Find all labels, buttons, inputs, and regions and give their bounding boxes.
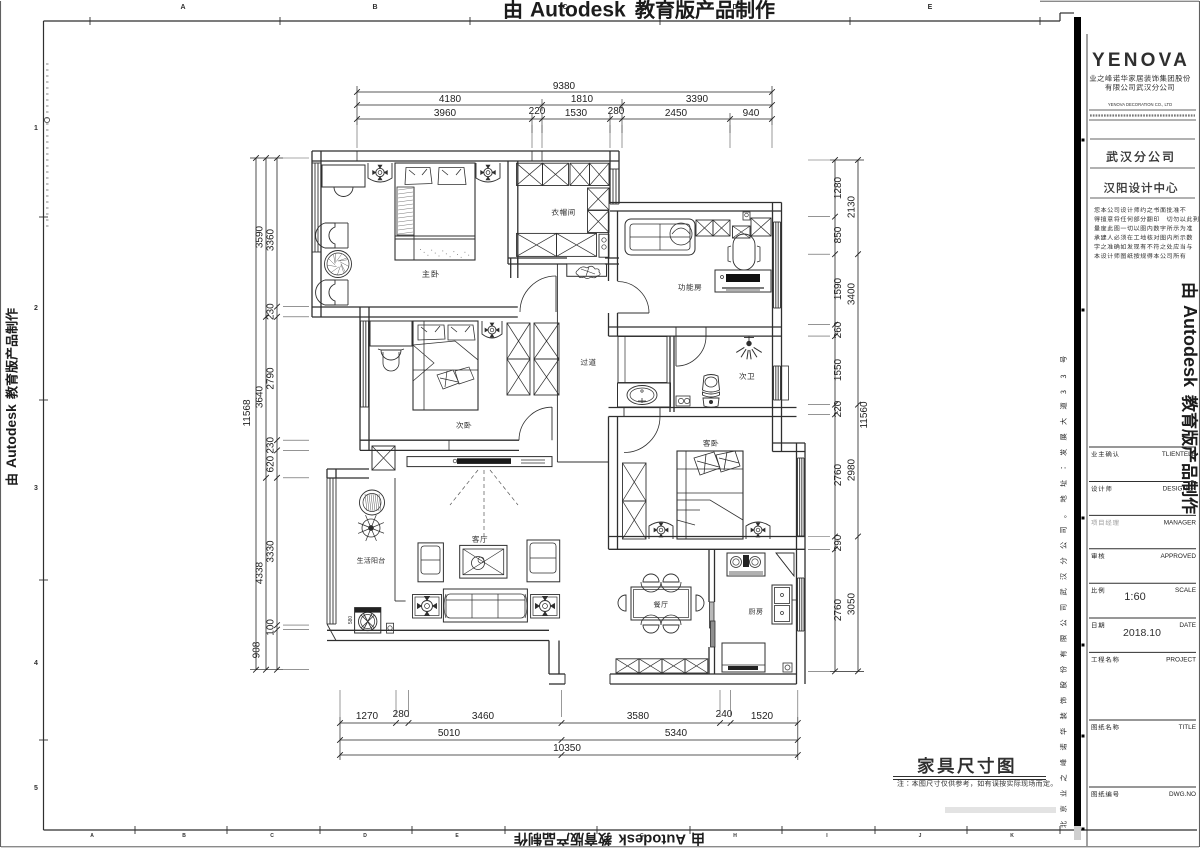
svg-text:3580: 3580: [627, 711, 650, 722]
svg-text:220: 220: [833, 400, 844, 417]
svg-text:280: 280: [393, 709, 410, 720]
svg-text:E: E: [928, 4, 933, 11]
svg-text:850: 850: [833, 226, 844, 243]
svg-text:3590: 3590: [255, 225, 266, 248]
svg-text:10350: 10350: [553, 743, 581, 754]
svg-text:100: 100: [266, 619, 277, 636]
svg-text:D: D: [363, 833, 367, 839]
svg-text:2760: 2760: [833, 463, 844, 486]
svg-text:PROJECT: PROJECT: [1166, 656, 1196, 663]
svg-text:4: 4: [34, 660, 38, 667]
svg-text:2980: 2980: [847, 458, 858, 481]
svg-text:3400: 3400: [847, 282, 858, 305]
svg-text:3: 3: [34, 485, 38, 492]
svg-text:Autodesk: Autodesk: [1180, 305, 1200, 388]
svg-text:1:60: 1:60: [1124, 591, 1145, 603]
svg-text:1530: 1530: [565, 108, 588, 119]
svg-text:2450: 2450: [665, 108, 688, 119]
svg-text:580: 580: [348, 616, 354, 625]
svg-text:A: A: [90, 833, 94, 839]
svg-text:Autodesk: Autodesk: [530, 0, 626, 22]
svg-text:APPROVED: APPROVED: [1160, 553, 1196, 560]
svg-text:3330: 3330: [266, 540, 277, 563]
svg-text:230: 230: [266, 303, 277, 320]
svg-text:2130: 2130: [847, 195, 858, 218]
svg-text:SCALE: SCALE: [1175, 587, 1196, 594]
svg-text:260: 260: [833, 321, 844, 338]
svg-text:1810: 1810: [571, 94, 594, 105]
svg-text:Autodesk: Autodesk: [618, 830, 686, 846]
svg-text:H: H: [733, 833, 737, 839]
svg-text:940: 940: [743, 108, 760, 119]
svg-text:1520: 1520: [751, 711, 774, 722]
svg-text:B: B: [372, 4, 377, 11]
svg-text:3050: 3050: [847, 592, 858, 615]
svg-text:1280: 1280: [833, 176, 844, 199]
svg-text:2760: 2760: [833, 598, 844, 621]
svg-text:1590: 1590: [833, 277, 844, 300]
svg-text:Autodesk: Autodesk: [3, 404, 19, 468]
svg-text:3360: 3360: [266, 228, 277, 251]
svg-text:2790: 2790: [266, 367, 277, 390]
svg-text:DESIGNER: DESIGNER: [1163, 486, 1197, 493]
svg-text:5010: 5010: [438, 728, 461, 739]
svg-text:220: 220: [529, 106, 546, 117]
svg-text:B: B: [182, 833, 186, 839]
svg-text:230: 230: [266, 437, 277, 454]
svg-text:1550: 1550: [833, 358, 844, 381]
svg-text:908: 908: [252, 641, 263, 658]
svg-text:290: 290: [833, 534, 844, 551]
svg-text:620: 620: [266, 455, 277, 472]
svg-text:3640: 3640: [255, 385, 266, 408]
svg-text:3390: 3390: [686, 94, 709, 105]
svg-text:4338: 4338: [255, 561, 266, 584]
svg-text:J: J: [919, 833, 922, 839]
svg-text:1270: 1270: [356, 711, 379, 722]
svg-text:TLIENTELE: TLIENTELE: [1162, 451, 1196, 458]
svg-text:4180: 4180: [439, 94, 462, 105]
svg-text:DWG.NO: DWG.NO: [1169, 791, 1196, 798]
svg-text:YENOVA: YENOVA: [1092, 50, 1190, 71]
svg-text:11560: 11560: [859, 401, 870, 429]
svg-text:5340: 5340: [665, 728, 688, 739]
svg-text:11568: 11568: [242, 399, 253, 427]
svg-text:2: 2: [34, 305, 38, 312]
svg-text:9380: 9380: [553, 81, 576, 92]
svg-text:MANAGER: MANAGER: [1164, 519, 1197, 526]
svg-text:240: 240: [716, 709, 733, 720]
svg-text:5: 5: [34, 785, 38, 792]
svg-text:3960: 3960: [434, 108, 457, 119]
svg-text:YENOVA DECORATION CO., LTD: YENOVA DECORATION CO., LTD: [1108, 102, 1172, 107]
svg-text:K: K: [1010, 833, 1014, 839]
svg-text:3460: 3460: [472, 711, 495, 722]
svg-text:TITLE: TITLE: [1179, 724, 1196, 731]
svg-text:C: C: [270, 833, 274, 839]
svg-text:280: 280: [608, 106, 625, 117]
svg-text:A: A: [180, 4, 185, 11]
svg-text:1: 1: [34, 125, 38, 132]
svg-text:DATE: DATE: [1179, 622, 1196, 629]
svg-text:2018.10: 2018.10: [1123, 627, 1161, 639]
